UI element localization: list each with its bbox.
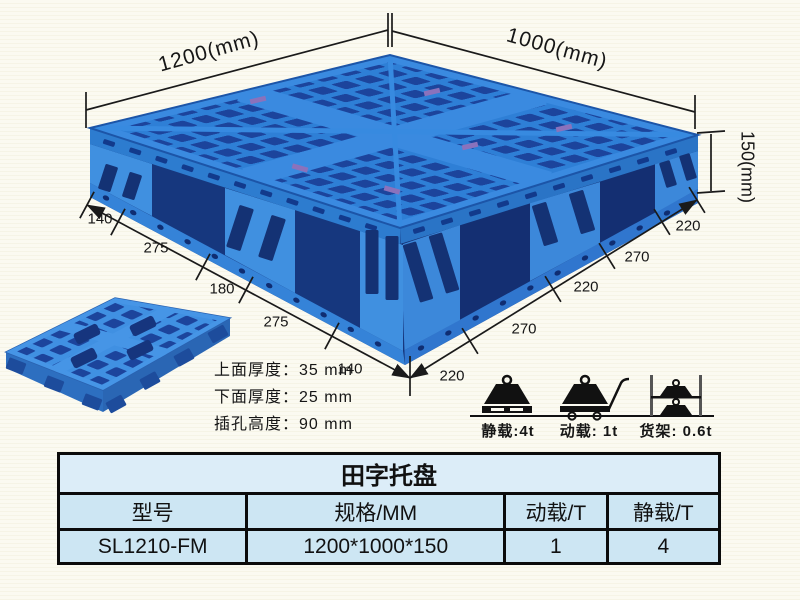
cell-model: SL1210-FM [59,530,247,564]
col-header-dynamic-load: 动载/T [505,494,607,530]
note-socket-height: 插孔高度：90 mm [214,410,353,434]
load-icons [470,375,714,420]
cell-spec: 1200*1000*150 [247,530,505,564]
dim-label-height: 150(mm) [737,131,758,203]
rack-load-icon [650,375,702,416]
static-load-icon [482,376,532,413]
note-bottom-thickness: 下面厚度：25 mm [214,383,353,407]
dynamic-load-icon [560,376,629,420]
col-header-model: 型号 [59,494,247,530]
table-title: 田字托盘 [59,454,720,494]
dim-right-4: 270 [624,249,649,266]
dim-right-5: 220 [675,218,700,235]
cell-static-load: 4 [607,530,719,564]
col-header-static-load: 静载/T [607,494,719,530]
dim-left-1: 140 [87,211,112,228]
note-top-thickness: 上面厚度：35 mm [214,356,353,380]
small-pallet-illustration [5,298,230,414]
dim-left-4: 275 [263,314,288,331]
dim-right-2: 270 [511,321,536,338]
table-row: SL1210-FM 1200*1000*150 1 4 [59,530,720,564]
dim-right-1: 220 [439,368,464,385]
pallet-spec-sheet: 1200(mm) 1000(mm) 150(mm) 140 275 180 27… [0,0,800,600]
rack-load-label: 货架: 0.6t [639,420,712,441]
cell-dynamic-load: 1 [505,530,607,564]
dim-left-2: 275 [143,240,168,257]
dim-left-3: 180 [209,281,234,298]
col-header-spec: 规格/MM [247,494,505,530]
dim-right-3: 220 [573,279,598,296]
dynamic-load-label: 动载: 1t [560,420,619,441]
spec-table: 田字托盘 型号 规格/MM 动载/T 静载/T SL1210-FM 1200*1… [57,452,721,565]
static-load-label: 静载:4t [481,420,534,441]
table-header-row: 型号 规格/MM 动载/T 静载/T [59,494,720,530]
